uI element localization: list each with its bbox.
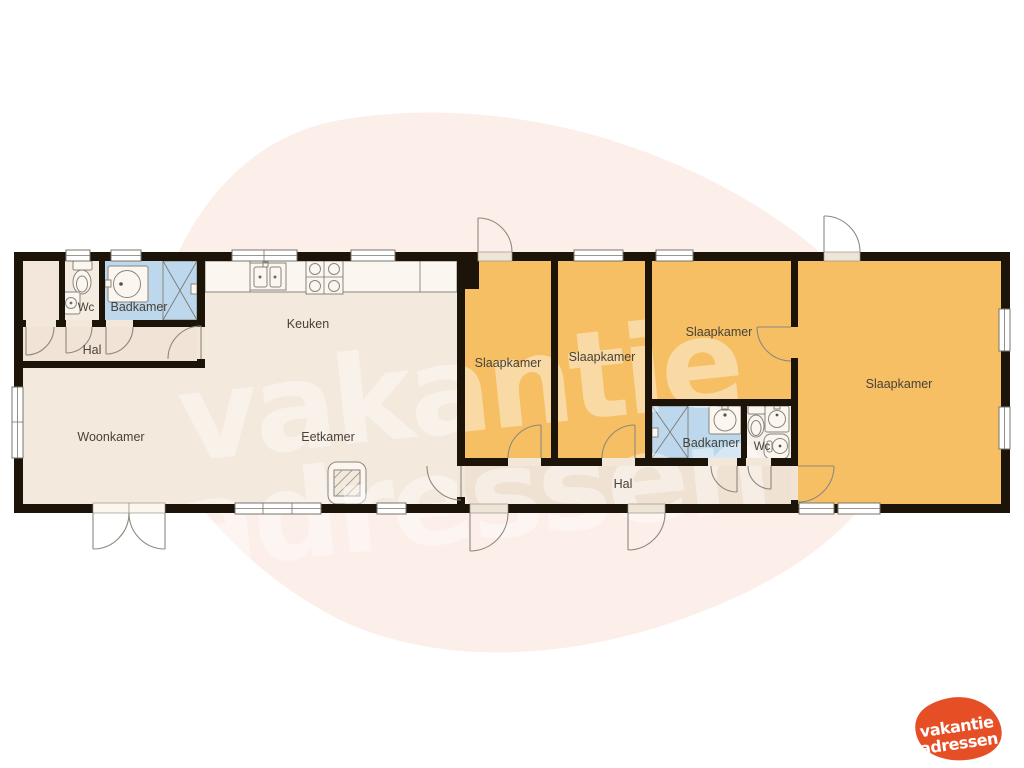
- stove-icon: [306, 261, 343, 294]
- label-slaapkamer-1: Slaapkamer: [475, 356, 542, 370]
- window: [656, 250, 693, 261]
- label-slaapkamer-4: Slaapkamer: [866, 377, 933, 391]
- window: [838, 503, 880, 514]
- window: [235, 503, 321, 514]
- label-hal-right: Hal: [614, 477, 633, 491]
- exterior-door-slaapkamer-4: [824, 216, 860, 252]
- window: [351, 250, 395, 261]
- window: [12, 387, 23, 458]
- label-woonkamer: Woonkamer: [77, 430, 144, 444]
- vakantieadressen-logo: vakantie adressen: [915, 697, 1001, 760]
- label-hal-left: Hal: [83, 343, 102, 357]
- floorplan-page: vakantie adressen: [0, 0, 1024, 768]
- washbasin-icon: [105, 266, 148, 302]
- label-keuken: Keuken: [287, 317, 329, 331]
- window: [111, 250, 141, 261]
- washbasin-icon: [765, 405, 789, 432]
- french-doors-woonkamer: [93, 513, 165, 549]
- window: [232, 250, 297, 261]
- room-closet: [23, 261, 59, 320]
- label-wc-right: Wc: [754, 441, 771, 453]
- window: [799, 503, 834, 514]
- window: [574, 250, 623, 261]
- floorplan-svg: vakantie adressen: [0, 0, 1024, 768]
- label-eetkamer: Eetkamer: [301, 430, 355, 444]
- label-slaapkamer-2: Slaapkamer: [569, 350, 636, 364]
- window: [377, 503, 406, 514]
- window: [66, 250, 90, 261]
- toilet-icon: [73, 261, 92, 294]
- label-badkamer-left: Badkamer: [111, 300, 168, 314]
- kitchen-sink-icon: [250, 262, 286, 290]
- label-badkamer-right: Badkamer: [683, 436, 740, 450]
- label-slaapkamer-3: Slaapkamer: [686, 325, 753, 339]
- window: [999, 407, 1010, 449]
- window: [999, 309, 1010, 351]
- label-wc-left: Wc: [78, 302, 95, 314]
